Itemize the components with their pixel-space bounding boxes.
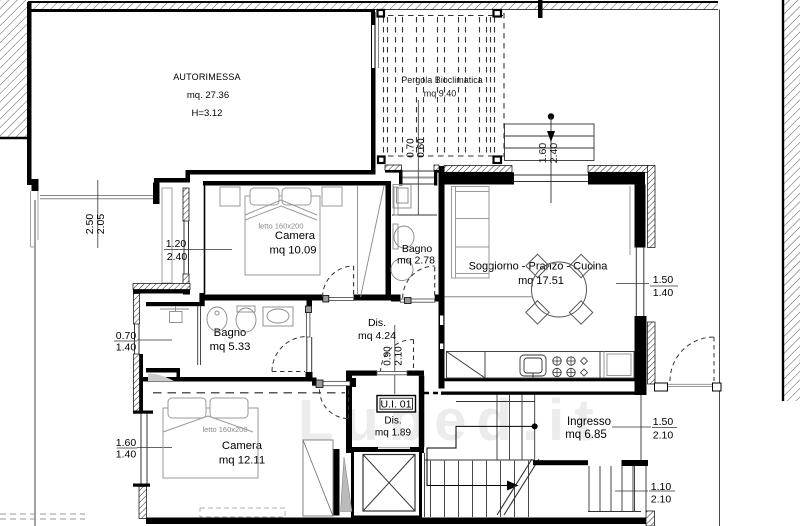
svg-text:0.60: 0.60 [416, 138, 427, 158]
svg-text:Camera: Camera [222, 440, 263, 452]
svg-text:Pergola Bioclimatica: Pergola Bioclimatica [401, 75, 483, 85]
svg-text:2.10: 2.10 [653, 430, 674, 442]
svg-text:mq 5.33: mq 5.33 [210, 341, 251, 353]
svg-text:mq. 27.36: mq. 27.36 [187, 90, 229, 101]
svg-text:1.20: 1.20 [166, 238, 187, 250]
svg-text:mq 2.78: mq 2.78 [397, 255, 435, 267]
svg-text:mq 4.24: mq 4.24 [358, 330, 396, 342]
svg-text:1.50: 1.50 [653, 416, 674, 428]
svg-text:Dis.: Dis. [368, 317, 386, 329]
svg-text:mq 9.40: mq 9.40 [424, 89, 457, 99]
svg-text:2.05: 2.05 [95, 214, 107, 235]
svg-text:2.40: 2.40 [167, 251, 188, 263]
svg-text:2.40: 2.40 [548, 143, 560, 164]
svg-text:Bagno: Bagno [214, 327, 247, 339]
svg-text:0.70: 0.70 [116, 330, 137, 342]
svg-text:letto 160x200: letto 160x200 [202, 425, 247, 434]
svg-text:AUTORIMESSA: AUTORIMESSA [173, 72, 241, 82]
svg-text:Ingresso: Ingresso [567, 416, 611, 428]
svg-text:0.90: 0.90 [383, 346, 394, 366]
svg-text:0.70: 0.70 [406, 138, 417, 158]
svg-text:H=3.12: H=3.12 [192, 108, 223, 119]
svg-text:mq 10.09: mq 10.09 [269, 245, 316, 257]
svg-text:mq 6.85: mq 6.85 [565, 429, 607, 441]
svg-text:1.40: 1.40 [653, 287, 674, 299]
svg-text:Dis.: Dis. [384, 416, 401, 427]
svg-text:Lubed.it: Lubed.it [298, 388, 604, 453]
svg-text:2.10: 2.10 [394, 346, 405, 366]
svg-text:1.40: 1.40 [116, 449, 137, 461]
svg-text:1.50: 1.50 [653, 274, 674, 286]
svg-text:1.10: 1.10 [651, 481, 672, 493]
svg-text:Camera: Camera [275, 230, 316, 242]
svg-text:mq 17.51: mq 17.51 [518, 275, 564, 287]
svg-text:1.60: 1.60 [116, 437, 137, 449]
svg-text:Bagno: Bagno [402, 243, 433, 255]
svg-text:1.40: 1.40 [116, 342, 137, 354]
svg-text:mq 1.89: mq 1.89 [375, 428, 412, 439]
svg-text:2.10: 2.10 [651, 494, 672, 506]
svg-text:U.I. 01: U.I. 01 [381, 399, 412, 411]
